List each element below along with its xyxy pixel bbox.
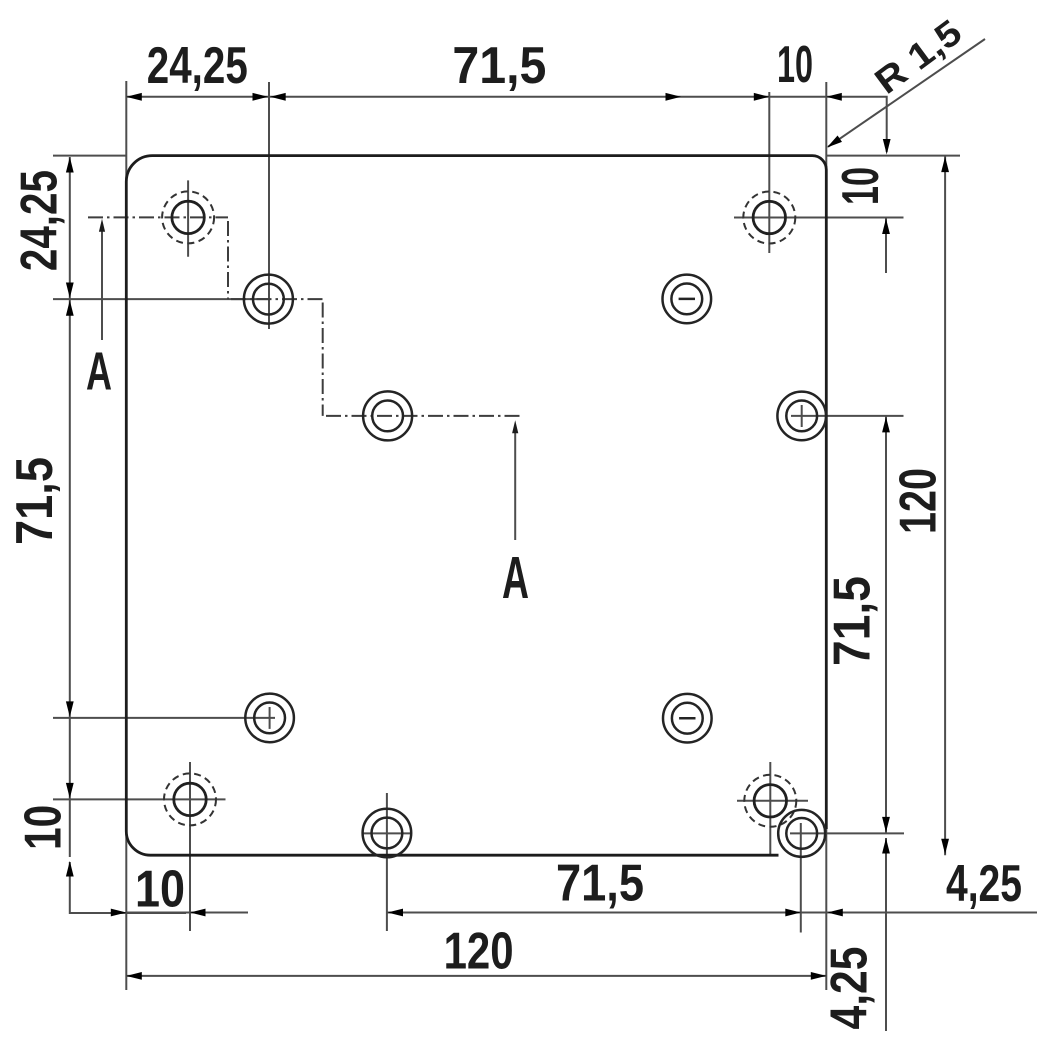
svg-text:71,5: 71,5 [452, 37, 546, 95]
svg-text:120: 120 [889, 468, 947, 534]
svg-text:71,5: 71,5 [824, 576, 882, 666]
svg-text:A: A [86, 342, 112, 402]
svg-text:10: 10 [832, 167, 890, 205]
svg-text:10: 10 [15, 805, 73, 850]
svg-text:71,5: 71,5 [556, 855, 644, 913]
svg-text:4,25: 4,25 [821, 947, 879, 1030]
svg-text:120: 120 [444, 923, 514, 981]
svg-text:4,25: 4,25 [946, 855, 1022, 913]
svg-text:24,25: 24,25 [147, 37, 248, 95]
svg-text:24,25: 24,25 [11, 170, 69, 271]
svg-text:10: 10 [135, 861, 185, 919]
svg-text:10: 10 [777, 36, 813, 94]
svg-text:71,5: 71,5 [6, 457, 64, 545]
svg-text:A: A [502, 545, 529, 611]
